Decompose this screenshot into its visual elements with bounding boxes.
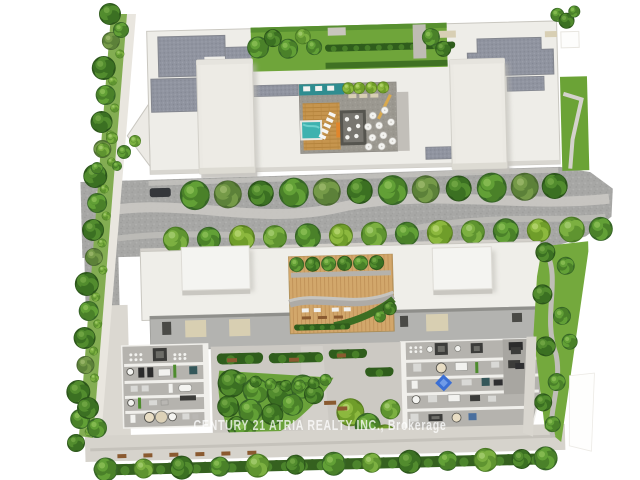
svg-text:CENTURY 21 ATRIA REALTY INC.,: CENTURY 21 ATRIA REALTY INC., Brokerage (194, 417, 447, 434)
